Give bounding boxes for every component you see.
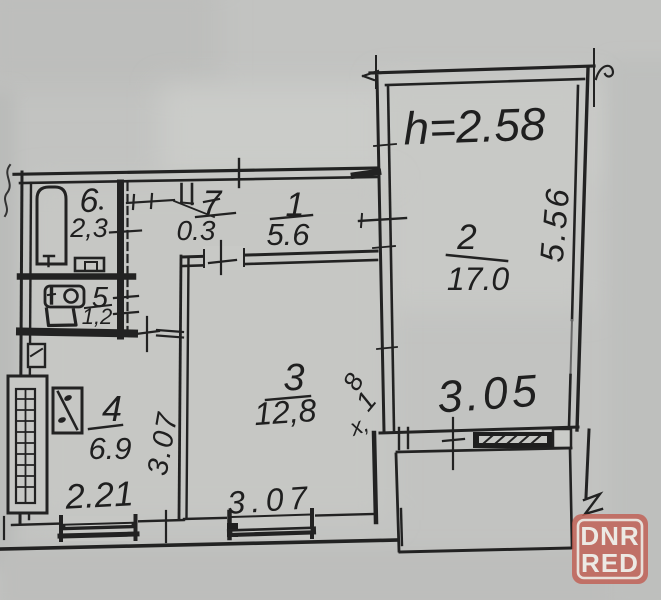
svg-text:3.07: 3.07	[226, 479, 315, 521]
svg-text:1,2: 1,2	[82, 304, 113, 329]
svg-text:6.9: 6.9	[88, 431, 131, 466]
svg-text:12,8: 12,8	[253, 392, 318, 432]
svg-text:2,3: 2,3	[69, 213, 108, 243]
svg-text:2.21: 2.21	[63, 474, 134, 517]
svg-text:0.3: 0.3	[177, 215, 216, 246]
svg-text:17.0: 17.0	[447, 261, 509, 297]
svg-text:5.6: 5.6	[266, 217, 310, 252]
svg-text:3.05: 3.05	[435, 364, 542, 422]
svg-text:2: 2	[456, 218, 476, 257]
svg-text:4: 4	[102, 388, 122, 429]
svg-text:DNR: DNR	[580, 521, 639, 551]
svg-text:5.56: 5.56	[533, 184, 577, 263]
svg-text:RED: RED	[581, 548, 639, 578]
svg-text:h=2.58: h=2.58	[403, 98, 547, 155]
